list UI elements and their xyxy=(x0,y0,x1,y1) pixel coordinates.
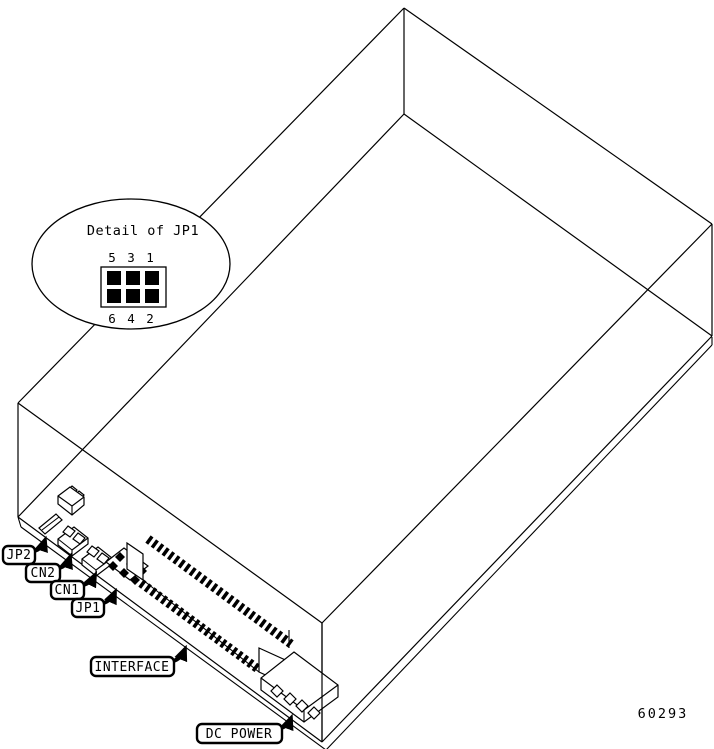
detail-callout: Detail of JP1 5 3 1 6 4 2 xyxy=(32,199,230,329)
page-background xyxy=(0,0,714,749)
jp2-label-text: JP2 xyxy=(7,548,32,563)
pin-number-2: 2 xyxy=(146,311,154,326)
dc-power-label-text: DC POWER xyxy=(206,727,273,742)
jp1-label-text: JP1 xyxy=(76,601,101,616)
jumper-pin xyxy=(126,271,140,285)
jumper-pin xyxy=(107,289,121,303)
detail-title: Detail of JP1 xyxy=(87,223,199,239)
technical-figure-page: Detail of JP1 5 3 1 6 4 2 JP2 CN2 CN1 xyxy=(0,0,714,749)
pin-number-4: 4 xyxy=(127,311,135,326)
pin-number-1: 1 xyxy=(146,250,154,265)
pin-number-3: 3 xyxy=(127,250,135,265)
diagram-canvas: Detail of JP1 5 3 1 6 4 2 JP2 CN2 CN1 xyxy=(0,0,714,749)
jumper-pin xyxy=(145,289,159,303)
pin-number-6: 6 xyxy=(108,311,116,326)
cn1-label-text: CN1 xyxy=(55,583,80,598)
figure-number: 60293 xyxy=(638,706,689,722)
jumper-pin xyxy=(107,271,121,285)
jumper-pin xyxy=(145,271,159,285)
interface-label-text: INTERFACE xyxy=(95,660,170,675)
cn2-label-text: CN2 xyxy=(31,566,56,581)
jumper-pin xyxy=(126,289,140,303)
pin-number-5: 5 xyxy=(108,250,116,265)
